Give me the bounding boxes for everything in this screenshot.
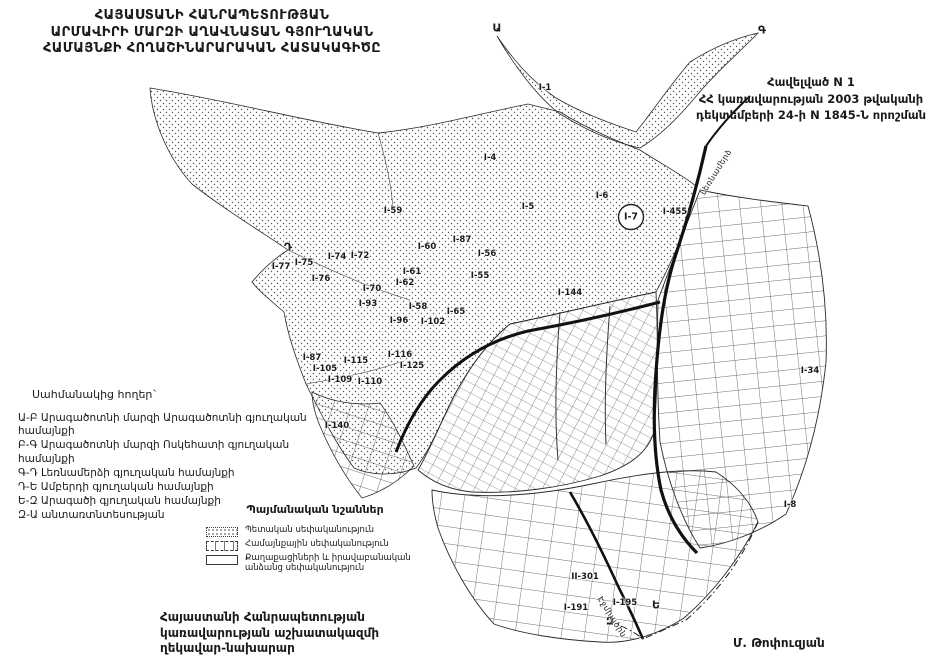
map-title: ՀԱՅԱՍՏԱՆԻ ՀԱՆՐԱՊԵՏՈՒԹՅԱՆ ԱՐՄԱՎԻՐԻ ՄԱՐԶԻ … xyxy=(12,8,412,58)
adjacent-land-item: Գ-Դ Լեռնամերձի գյուղական համայնքի xyxy=(18,467,348,481)
map-title-line: ՀԱՅԱՍՏԱՆԻ ՀԱՆՐԱՊԵՏՈՒԹՅԱՆ xyxy=(12,8,412,25)
issuing-authority-block: Հայաստանի Հանրապետության կառավարության ա… xyxy=(160,610,460,657)
south-parcels-area xyxy=(432,471,758,643)
legend-item-label: Պետական սեփականություն xyxy=(245,526,374,536)
map-sheet: I-1I-4I-5I-6I-59I-87I-60I-56I-55I-61I-62… xyxy=(0,0,937,658)
adjacent-land-item: Բ-Գ Արագածոտնի մարզի Ոսկեհատի գյուղական … xyxy=(18,439,348,467)
annex-line: Հավելված N 1 xyxy=(688,74,934,91)
legend-item-label: Համայնքային սեփականություն xyxy=(245,540,389,550)
legend-item-label: Քաղաքացիների և իրավաբանական անձանց սեփակ… xyxy=(245,554,430,574)
map-title-line: ՀԱՄԱՅՆՔԻ ՀՈՂԱՇԻՆԱՐԱՐԱԿԱՆ ՀԱՏԱԿԱԳԻԾԸ xyxy=(12,41,412,58)
i7-circle xyxy=(619,205,644,230)
hatch-swatch-icon xyxy=(206,541,238,551)
annex-note: Հավելված N 1 ՀՀ կառավարության 2003 թվակա… xyxy=(688,74,934,124)
issuing-authority-line: կառավարության աշխատակազմի xyxy=(160,626,460,642)
legend: Պայմանական նշաններ Պետական սեփականությու… xyxy=(200,503,430,577)
adjacent-land-item: Ա-Բ Արագածոտնի մարզի Արագածոտնի գյուղակա… xyxy=(18,412,348,440)
legend-item: Համայնքային սեփականություն xyxy=(200,540,430,551)
legend-item: Քաղաքացիների և իրավաբանական անձանց սեփակ… xyxy=(200,554,430,574)
map-title-line: ԱՐՄԱՎԻՐԻ ՄԱՐԶԻ ԱՂԱՎՆԱՏԱՆ ԳՅՈՒՂԱԿԱՆ xyxy=(12,25,412,42)
legend-items: Պետական սեփականությունՀամայնքային սեփակա… xyxy=(200,526,430,574)
issuing-authority-line: ղեկավար-նախարար xyxy=(160,641,460,657)
legend-heading: Պայմանական նշաններ xyxy=(200,503,430,516)
legend-item: Պետական սեփականություն xyxy=(200,526,430,537)
adjacent-land-item: Դ-Ե Ամբերդի գյուղական համայնքի xyxy=(18,481,348,495)
stipple-swatch-icon xyxy=(206,527,238,537)
signatory-name: Մ. Թոփուզյան xyxy=(733,636,825,650)
annex-line: ՀՀ կառավարության 2003 թվականի xyxy=(688,91,934,108)
annex-line: դեկտեմբերի 24-ի N 1845-Ն որոշման xyxy=(688,107,934,124)
issuing-authority-line: Հայաստանի Հանրապետության xyxy=(160,610,460,626)
plain-swatch-icon xyxy=(206,555,238,565)
adjacent-lands-heading: Սահմանակից հողեր` xyxy=(32,388,348,403)
